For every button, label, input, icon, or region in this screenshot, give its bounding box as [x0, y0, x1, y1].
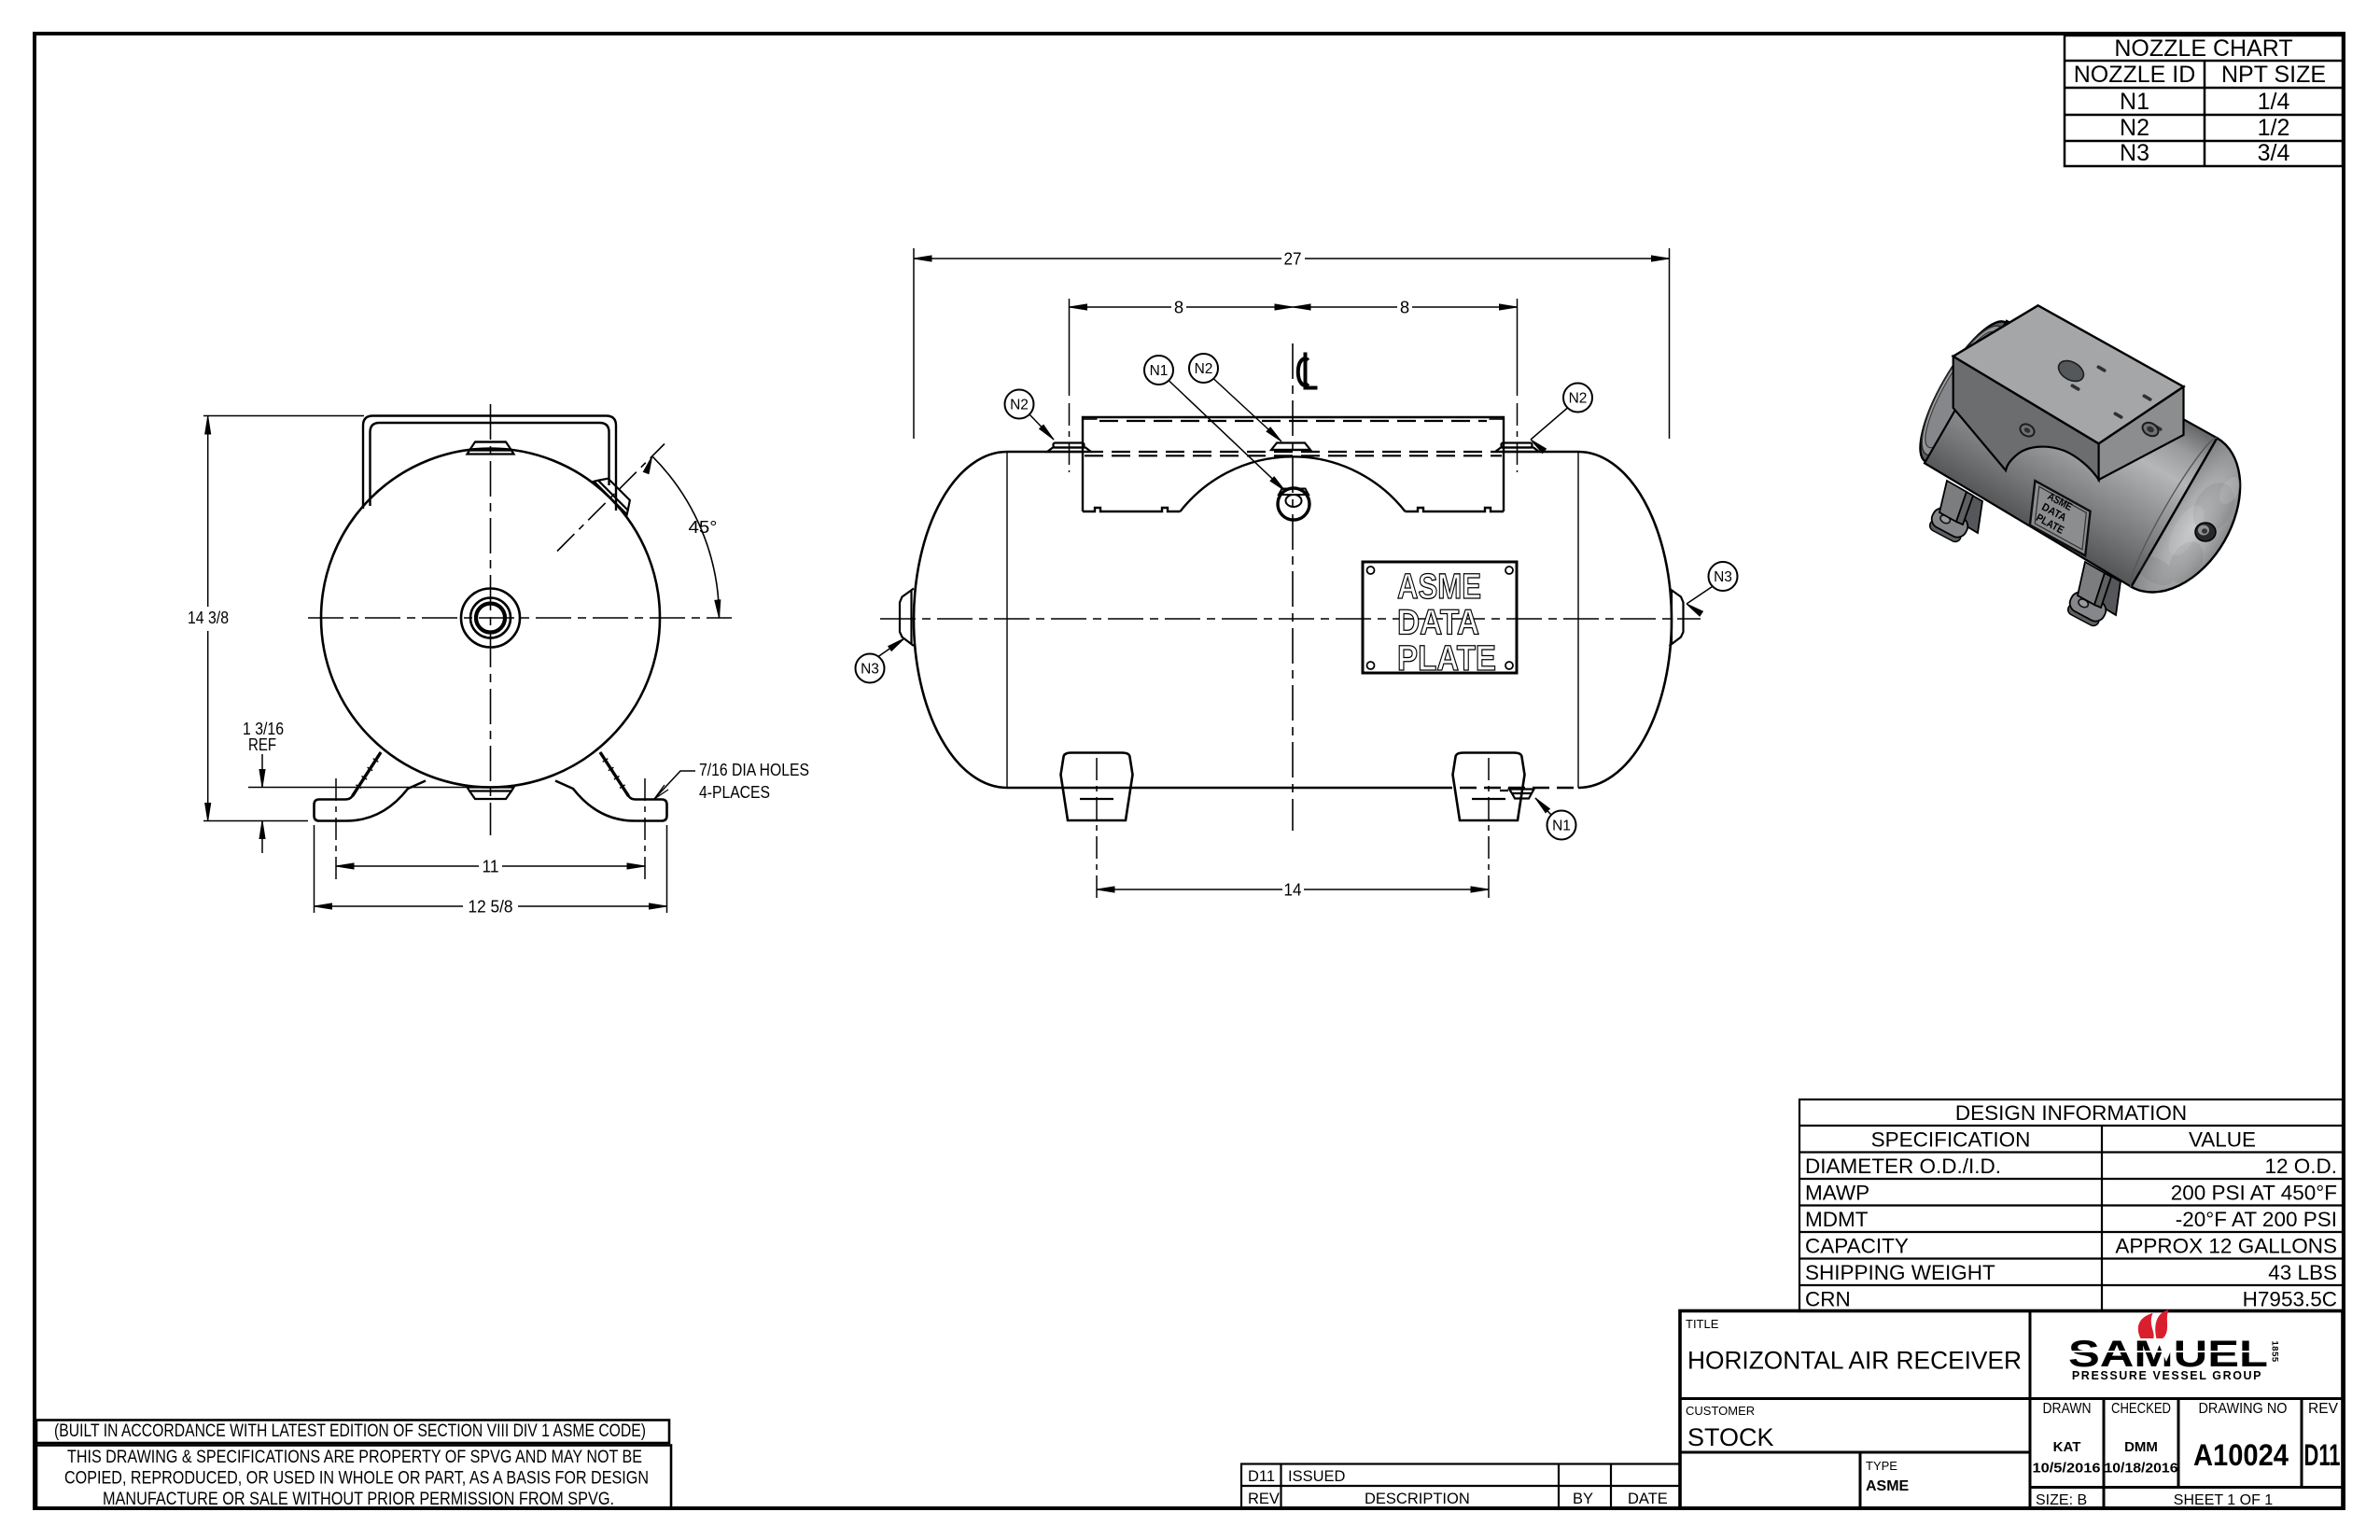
svg-text:ASME: ASME	[1397, 567, 1481, 607]
svg-text:BY: BY	[1573, 1491, 1593, 1507]
svg-text:3/4: 3/4	[2258, 140, 2290, 166]
svg-text:PLATE: PLATE	[1397, 639, 1496, 679]
svg-text:A10024: A10024	[2193, 1438, 2289, 1472]
svg-text:N1: N1	[1552, 819, 1571, 834]
svg-text:MANUFACTURE OR SALE WITHOUT PR: MANUFACTURE OR SALE WITHOUT PRIOR PERMIS…	[103, 1490, 614, 1509]
svg-text:-20°F AT 200 PSI: -20°F AT 200 PSI	[2176, 1208, 2337, 1231]
svg-text:MAWP: MAWP	[1805, 1182, 1869, 1205]
svg-text:DESCRIPTION: DESCRIPTION	[1365, 1491, 1470, 1507]
svg-text:(BUILT IN ACCORDANCE WITH LATE: (BUILT IN ACCORDANCE WITH LATEST EDITION…	[54, 1421, 646, 1441]
svg-text:11: 11	[483, 857, 499, 876]
svg-text:NPT SIZE: NPT SIZE	[2221, 62, 2326, 88]
svg-text:SPECIFICATION: SPECIFICATION	[1871, 1128, 2031, 1152]
svg-text:1/2: 1/2	[2258, 115, 2290, 141]
svg-text:4-PLACES: 4-PLACES	[699, 782, 770, 802]
svg-text:45°: 45°	[689, 517, 718, 537]
svg-text:ISSUED: ISSUED	[1288, 1468, 1346, 1485]
svg-text:SIZE: B: SIZE: B	[2036, 1492, 2087, 1508]
svg-text:D11: D11	[2304, 1438, 2341, 1472]
svg-text:SHIPPING WEIGHT: SHIPPING WEIGHT	[1805, 1261, 1995, 1284]
svg-text:12 5/8: 12 5/8	[469, 897, 513, 917]
svg-text:CAPACITY: CAPACITY	[1805, 1235, 1909, 1258]
svg-text:REV: REV	[1248, 1491, 1280, 1507]
svg-text:NOZZLE ID: NOZZLE ID	[2074, 62, 2196, 88]
svg-text:N2: N2	[1195, 361, 1213, 377]
svg-text:8: 8	[1174, 298, 1183, 317]
svg-text:DESIGN INFORMATION: DESIGN INFORMATION	[1955, 1101, 2187, 1125]
svg-text:APPROX 12 GALLONS: APPROX 12 GALLONS	[2115, 1235, 2337, 1258]
svg-text:H7953.5C: H7953.5C	[2243, 1288, 2337, 1311]
svg-text:DATE: DATE	[1628, 1491, 1668, 1507]
svg-text:N1: N1	[1150, 363, 1169, 379]
svg-text:TYPE: TYPE	[1866, 1459, 1897, 1473]
svg-text:N3: N3	[2120, 140, 2149, 166]
svg-text:THIS DRAWING & SPECIFICATIONS: THIS DRAWING & SPECIFICATIONS ARE PROPER…	[67, 1448, 642, 1467]
svg-text:SHEET 1 OF 1: SHEET 1 OF 1	[2174, 1492, 2274, 1508]
svg-text:CHECKED: CHECKED	[2111, 1401, 2171, 1417]
svg-text:HORIZONTAL AIR RECEIVER: HORIZONTAL AIR RECEIVER	[1687, 1347, 2022, 1375]
svg-text:7/16 DIA HOLES: 7/16 DIA HOLES	[699, 760, 809, 779]
svg-text:KAT: KAT	[2053, 1439, 2081, 1455]
svg-text:12 O.D.: 12 O.D.	[2264, 1155, 2337, 1178]
svg-text:N3: N3	[861, 662, 879, 678]
svg-text:NOZZLE CHART: NOZZLE CHART	[2114, 35, 2292, 62]
svg-text:PRESSURE VESSEL GROUP: PRESSURE VESSEL GROUP	[2072, 1369, 2262, 1382]
svg-text:10/5/2016: 10/5/2016	[2033, 1462, 2101, 1477]
svg-text:200 PSI AT 450°F: 200 PSI AT 450°F	[2171, 1182, 2337, 1205]
svg-text:1855: 1855	[2270, 1341, 2280, 1363]
svg-text:MDMT: MDMT	[1805, 1208, 1869, 1231]
svg-text:N3: N3	[1714, 569, 1732, 585]
svg-text:27: 27	[1284, 249, 1302, 269]
svg-text:D11: D11	[1248, 1468, 1275, 1485]
svg-text:DATA: DATA	[1397, 604, 1479, 643]
svg-text:N2: N2	[1569, 391, 1588, 407]
svg-text:DRAWN: DRAWN	[2043, 1401, 2092, 1417]
svg-text:COPIED, REPRODUCED, OR USED IN: COPIED, REPRODUCED, OR USED IN WHOLE OR …	[64, 1469, 649, 1489]
svg-text:DMM: DMM	[2124, 1439, 2158, 1455]
svg-text:TITLE: TITLE	[1686, 1317, 1719, 1331]
svg-text:DRAWING NO: DRAWING NO	[2199, 1401, 2288, 1417]
svg-text:10/18/2016: 10/18/2016	[2105, 1462, 2178, 1477]
svg-text:CUSTOMER: CUSTOMER	[1686, 1404, 1755, 1418]
svg-text:8: 8	[1400, 298, 1409, 317]
svg-text:REV: REV	[2308, 1401, 2339, 1417]
svg-text:STOCK: STOCK	[1687, 1423, 1774, 1451]
svg-text:N2: N2	[2120, 115, 2149, 141]
svg-text:N2: N2	[1010, 398, 1029, 413]
svg-text:CRN: CRN	[1805, 1288, 1851, 1311]
svg-text:43 LBS: 43 LBS	[2268, 1261, 2337, 1284]
svg-text:14: 14	[1284, 880, 1302, 900]
svg-text:14 3/8: 14 3/8	[188, 608, 229, 627]
svg-text:1/4: 1/4	[2258, 89, 2290, 115]
svg-text:DIAMETER O.D./I.D.: DIAMETER O.D./I.D.	[1805, 1155, 2001, 1178]
svg-text:REF: REF	[248, 735, 276, 754]
svg-text:VALUE: VALUE	[2189, 1128, 2256, 1152]
svg-text:ASME: ASME	[1866, 1478, 1910, 1494]
svg-text:N1: N1	[2120, 89, 2149, 115]
